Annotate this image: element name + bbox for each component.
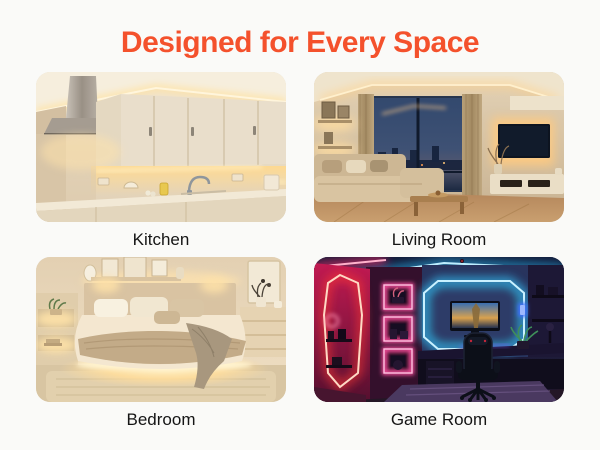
room-card-kitchen: Kitchen xyxy=(36,72,286,257)
game-room-photo xyxy=(314,257,564,402)
marketing-banner: Designed for Every Space xyxy=(0,0,600,450)
room-caption-bedroom: Bedroom xyxy=(36,402,286,437)
bedroom-scene-illustration xyxy=(36,257,286,402)
room-caption-game-room: Game Room xyxy=(314,402,564,437)
room-card-living-room: Living Room xyxy=(314,72,564,257)
page-title: Designed for Every Space xyxy=(0,26,600,60)
living-room-photo xyxy=(314,72,564,222)
room-card-bedroom: Bedroom xyxy=(36,257,286,437)
room-grid: Kitchen xyxy=(36,72,564,437)
living-room-scene-illustration xyxy=(314,72,564,222)
room-caption-kitchen: Kitchen xyxy=(36,222,286,257)
kitchen-photo xyxy=(36,72,286,222)
room-caption-living-room: Living Room xyxy=(314,222,564,257)
kitchen-scene-illustration xyxy=(36,72,286,222)
room-card-game-room: Game Room xyxy=(314,257,564,437)
bedroom-photo xyxy=(36,257,286,402)
game-room-scene-illustration xyxy=(314,257,564,402)
